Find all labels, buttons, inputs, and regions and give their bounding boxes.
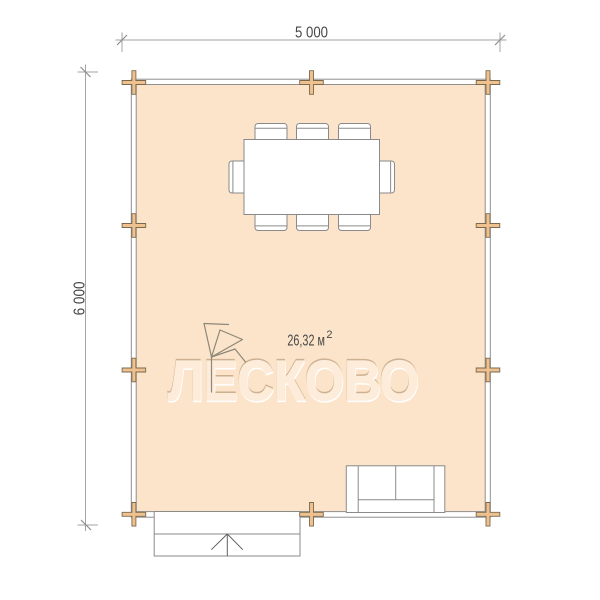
svg-text:26,32 м: 26,32 м <box>287 333 325 350</box>
svg-text:5 000: 5 000 <box>295 25 328 42</box>
svg-text:2: 2 <box>326 329 332 341</box>
svg-text:ЛЕСКОВО: ЛЕСКОВО <box>168 349 419 413</box>
svg-text:6 000: 6 000 <box>72 281 89 315</box>
